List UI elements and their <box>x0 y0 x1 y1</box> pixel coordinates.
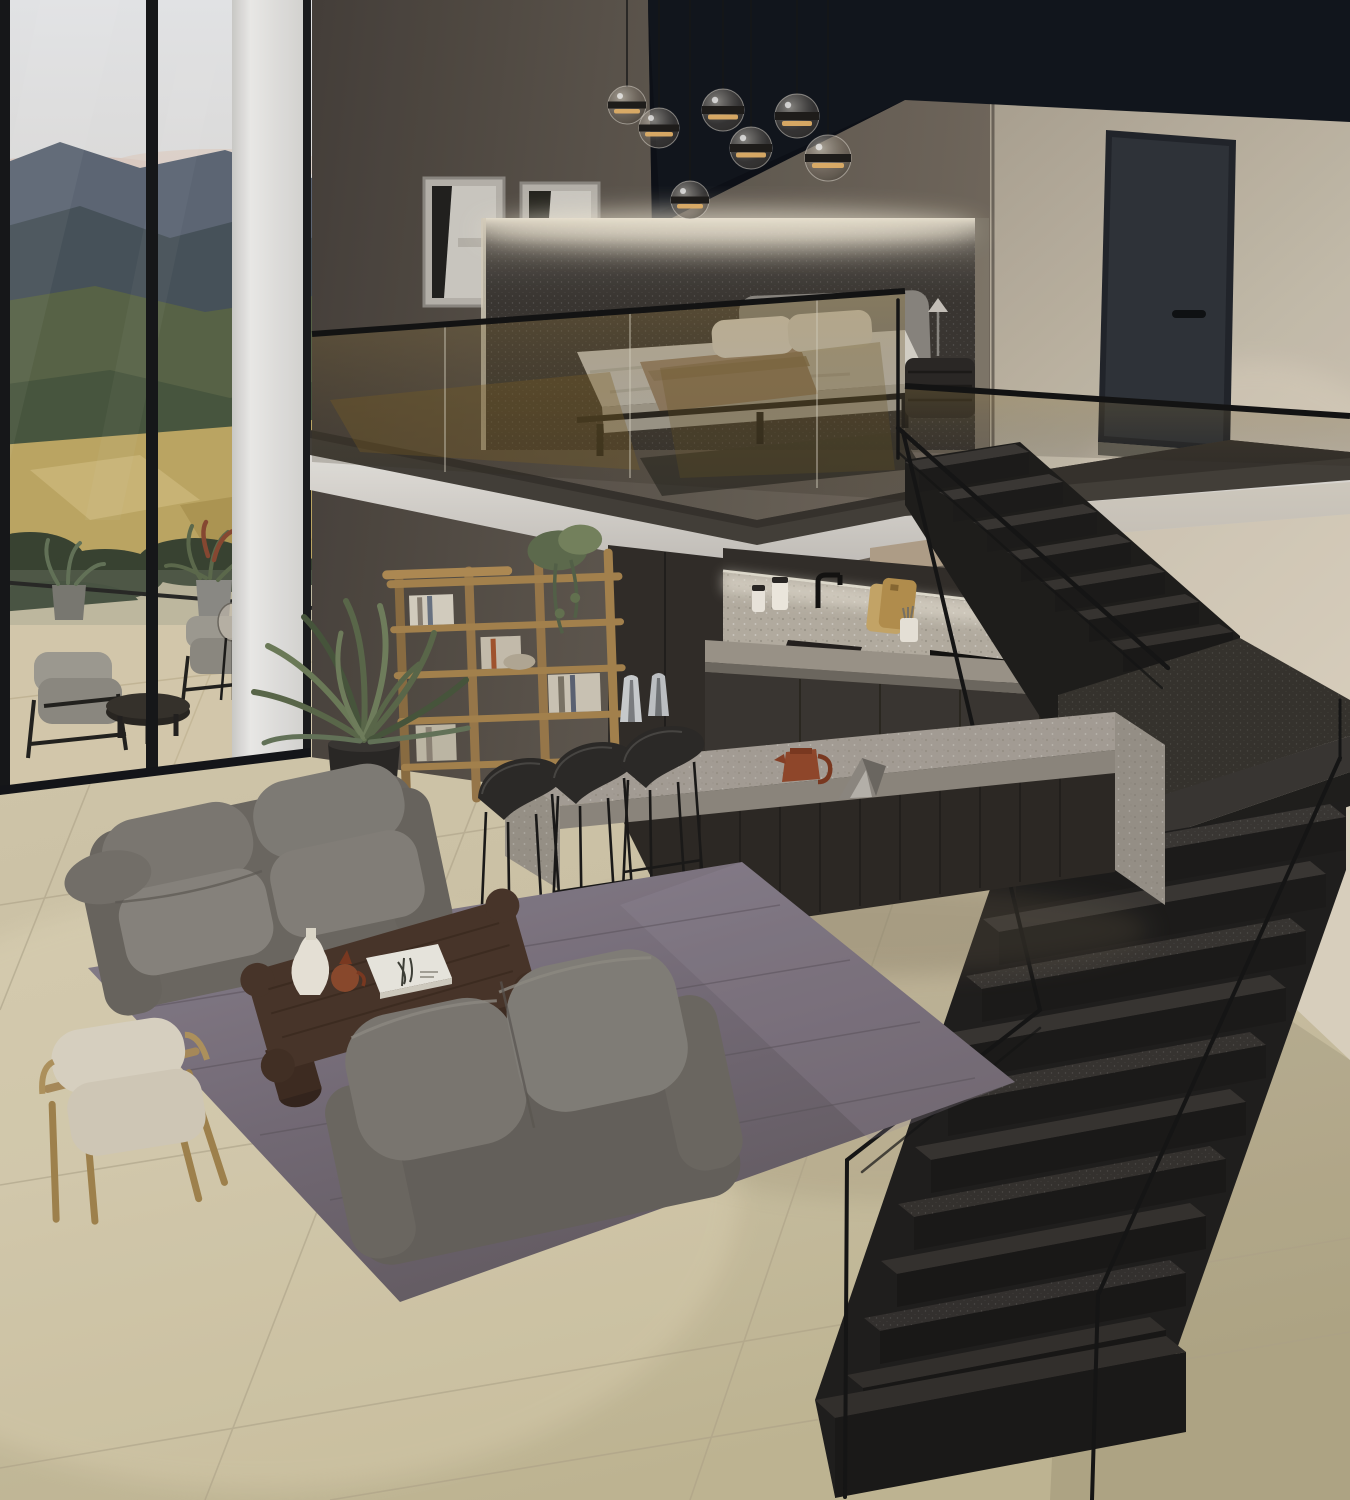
vignette <box>0 0 1350 1500</box>
loft-interior-render <box>0 0 1350 1500</box>
scene-svg <box>0 0 1350 1500</box>
